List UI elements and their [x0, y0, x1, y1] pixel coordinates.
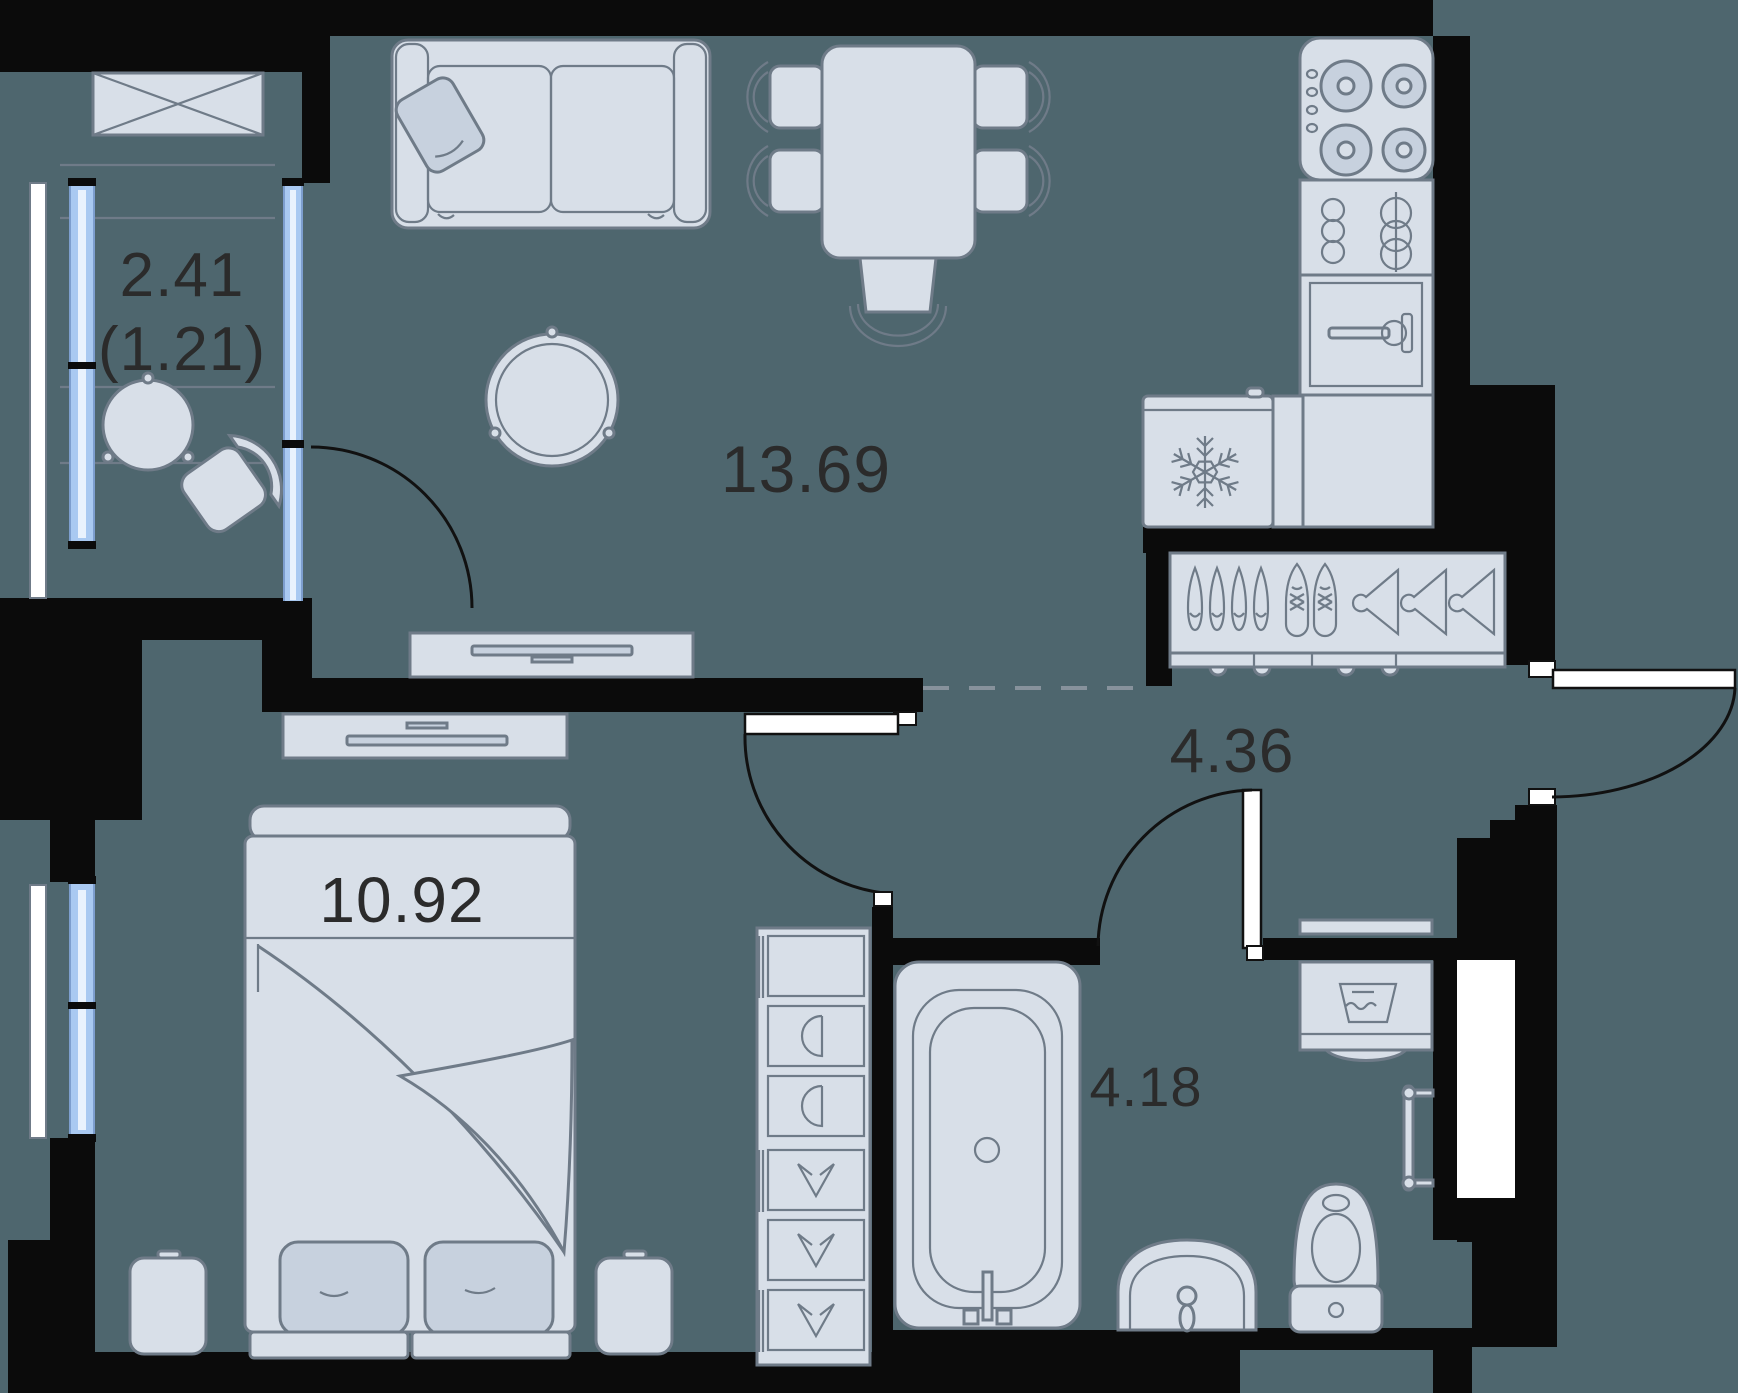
wall-bath-left: [872, 907, 893, 1393]
washing-machine: [1300, 962, 1432, 1061]
wall-corner-block: [1472, 1242, 1557, 1347]
wall-right-upper: [1433, 36, 1470, 385]
pillow: [425, 1242, 553, 1335]
wall-left-corner: [8, 1240, 95, 1353]
nightstand: [130, 1251, 206, 1354]
wall-left-upper: [50, 820, 95, 882]
wall-bath-right-column: [1433, 1328, 1472, 1393]
balcony-outer-pane: [30, 183, 46, 598]
window-cap: [282, 601, 304, 609]
wardrobe-foot: [1254, 667, 1270, 675]
window-cap: [282, 440, 304, 448]
window-cap: [68, 1134, 96, 1142]
window-cap: [68, 1002, 96, 1009]
door-jamb: [1247, 946, 1263, 960]
wall-top-main: [330, 0, 1433, 36]
balcony-table: [103, 380, 193, 470]
tv-stand-foot: [407, 723, 447, 728]
dining-table: [822, 46, 975, 258]
door-jamb: [874, 892, 892, 906]
wall-left-lower: [50, 1138, 95, 1255]
hall-shelf: [1300, 920, 1432, 934]
kitchen-cabinet: [1300, 275, 1433, 395]
wardrobe-foot: [1382, 667, 1398, 675]
nightstand: [596, 1251, 672, 1354]
kitchen-counter: [1300, 395, 1433, 527]
wall-under-kitchen: [1143, 527, 1470, 553]
stove: [1300, 38, 1433, 180]
wall-left-connector: [262, 598, 312, 712]
fridge: [1143, 388, 1273, 527]
toilet-tank: [1290, 1286, 1382, 1332]
bedroom-area-label: 10.92: [319, 864, 484, 936]
window-cap: [282, 178, 304, 186]
entry-door-leaf: [1553, 670, 1735, 688]
counter-connector: [1273, 396, 1303, 527]
wall-niche-left: [1433, 950, 1457, 1240]
tv-icon: [347, 736, 507, 745]
hallway-area-label: 4.36: [1170, 717, 1295, 786]
bathtub-faucet-icon: [964, 1310, 978, 1324]
ventilation-shaft: [1457, 960, 1515, 1198]
bed-base: [250, 1332, 408, 1358]
wall-niche-bottom: [1457, 1198, 1515, 1242]
tv-icon: [472, 646, 632, 655]
balcony-area-secondary-label: (1.21): [98, 315, 266, 384]
wall-hall-stub: [1146, 612, 1172, 686]
toilet: [1290, 1184, 1382, 1332]
sink-tap-icon: [1180, 1305, 1194, 1331]
balcony-area-label: 2.41: [120, 241, 245, 310]
window-cap: [68, 541, 96, 549]
window-cap: [68, 362, 96, 369]
door-jamb: [1529, 661, 1555, 677]
bedroom-door-leaf: [745, 714, 898, 734]
kitchen-sink: [1300, 180, 1433, 275]
wall-living-bedroom: [262, 678, 923, 712]
wall-balcony-right-pier: [302, 72, 330, 183]
floor-plan: 2.41 (1.21): [0, 0, 1738, 1393]
sofa: [392, 40, 710, 228]
bathroom-area-label: 4.18: [1090, 1055, 1203, 1118]
tv-stand-foot: [532, 657, 572, 662]
door-jamb: [1529, 789, 1555, 805]
wall-right-lower: [1515, 805, 1557, 1242]
dresser: [757, 928, 870, 1365]
wall-right-mid: [1505, 483, 1555, 665]
bathroom-sink: [1118, 1240, 1256, 1331]
bed-base: [412, 1332, 570, 1358]
wardrobe: [1170, 553, 1505, 675]
window-cap: [68, 876, 96, 884]
wall-left-block: [0, 598, 142, 820]
bathtub-faucet-icon: [997, 1310, 1011, 1324]
table-knob-icon: [183, 452, 193, 462]
sink-tap-icon: [1178, 1287, 1196, 1305]
bedroom-outer-pane: [30, 885, 46, 1138]
pillow: [280, 1242, 408, 1335]
bathroom-door-leaf: [1243, 790, 1261, 948]
bathtub: [895, 962, 1080, 1328]
cabinet-handle-icon: [1329, 328, 1389, 338]
wall-bottom-bathroom: [893, 1330, 1240, 1393]
wardrobe-foot: [1210, 667, 1226, 675]
table-knob-icon: [103, 452, 113, 462]
wall-right-step: [1433, 385, 1555, 483]
living-room-area-label: 13.69: [721, 432, 891, 506]
tv-stand-living: [410, 633, 693, 677]
bedroom-window-core: [78, 890, 86, 1130]
fridge-handle: [1247, 388, 1263, 397]
wall-bath-top-right: [1263, 938, 1557, 960]
wardrobe-foot: [1338, 667, 1354, 675]
wall-balcony-top: [0, 0, 330, 72]
window-cap: [68, 178, 96, 186]
bathtub-faucet-icon: [983, 1272, 992, 1320]
wall-niche-stub: [1490, 820, 1515, 838]
tv-stand-bedroom: [283, 714, 567, 758]
balcony-window-door-core: [290, 190, 296, 600]
